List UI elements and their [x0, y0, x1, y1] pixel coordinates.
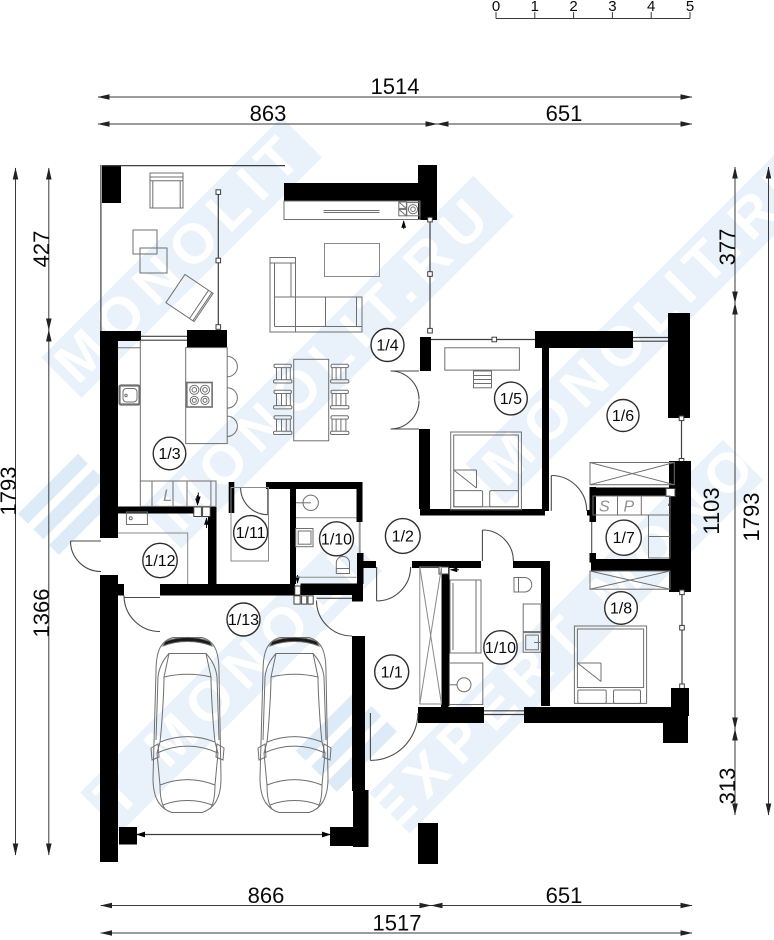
svg-text:651: 651 — [546, 883, 583, 908]
svg-text:1/3: 1/3 — [158, 446, 180, 463]
svg-text:1/12: 1/12 — [144, 553, 175, 570]
svg-text:1/5: 1/5 — [500, 391, 522, 408]
svg-text:863: 863 — [250, 101, 287, 126]
svg-text:1366: 1366 — [29, 589, 54, 638]
svg-text:1793: 1793 — [0, 467, 21, 516]
svg-text:1/6: 1/6 — [612, 408, 634, 425]
svg-text:2: 2 — [569, 0, 577, 15]
svg-text:1/1: 1/1 — [381, 664, 403, 681]
svg-text:5: 5 — [686, 0, 694, 15]
svg-text:377: 377 — [715, 229, 740, 266]
svg-text:1: 1 — [531, 0, 539, 15]
svg-text:4: 4 — [647, 0, 655, 15]
svg-text:1103: 1103 — [699, 487, 724, 534]
svg-text:313: 313 — [715, 768, 740, 805]
svg-text:1/2: 1/2 — [392, 529, 414, 546]
svg-text:0: 0 — [492, 0, 500, 15]
svg-text:MONOLIT: MONOLIT — [42, 118, 319, 395]
svg-text:3: 3 — [608, 0, 616, 15]
svg-text:1517: 1517 — [373, 911, 422, 936]
svg-text:1514: 1514 — [371, 74, 420, 99]
svg-text:1/13: 1/13 — [228, 612, 259, 629]
svg-text:1/11: 1/11 — [236, 525, 266, 542]
svg-text:1/7: 1/7 — [613, 530, 635, 547]
svg-text:651: 651 — [546, 101, 583, 126]
svg-text:1793: 1793 — [739, 493, 764, 542]
svg-text:1/10: 1/10 — [321, 531, 352, 548]
svg-text:1/8: 1/8 — [610, 601, 632, 618]
svg-text:P: P — [624, 499, 635, 516]
svg-text:S: S — [599, 499, 610, 516]
svg-text:1/10: 1/10 — [485, 640, 516, 657]
svg-text:866: 866 — [248, 883, 285, 908]
svg-text:L: L — [163, 486, 172, 505]
svg-text:427: 427 — [29, 231, 54, 268]
svg-text:1/4: 1/4 — [376, 338, 398, 355]
